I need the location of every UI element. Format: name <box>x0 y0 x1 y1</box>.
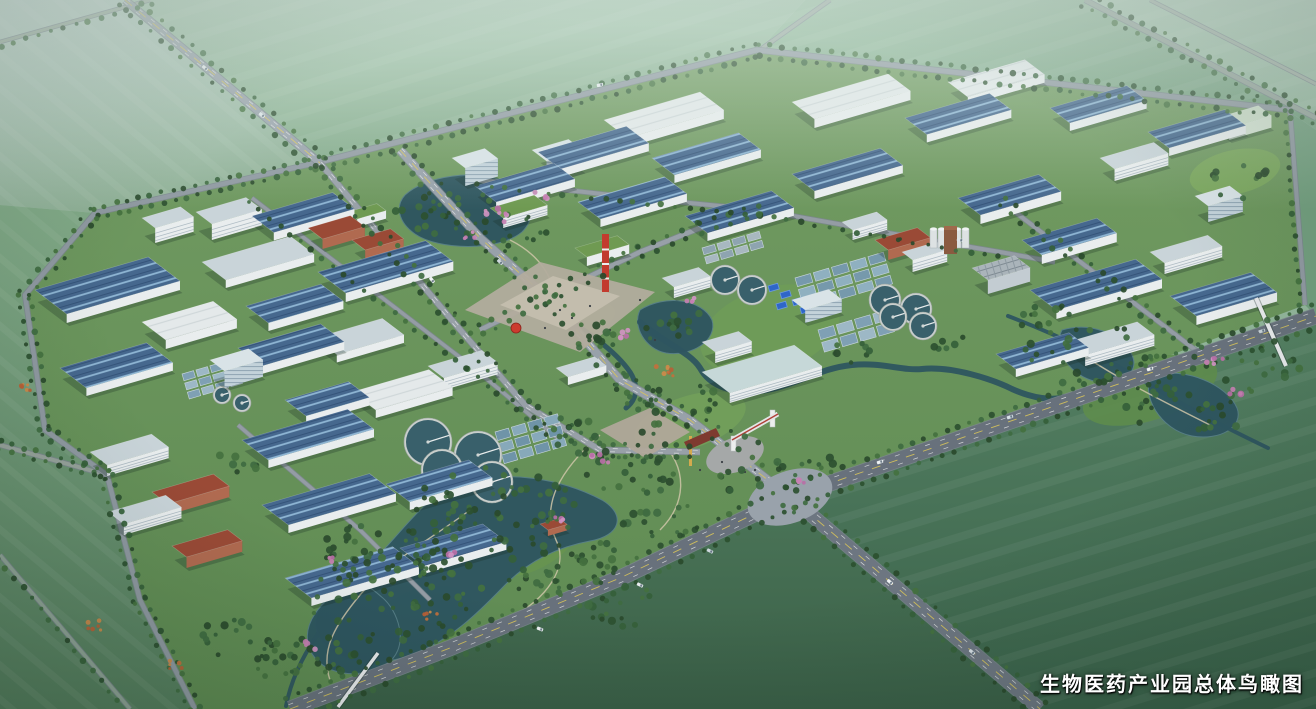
aerial-render: 生物医药产业园总体鸟瞰图 <box>0 0 1316 709</box>
industrial-park-scene <box>0 0 1316 709</box>
vignette <box>0 0 1316 709</box>
image-caption: 生物医药产业园总体鸟瞰图 <box>1040 668 1304 697</box>
